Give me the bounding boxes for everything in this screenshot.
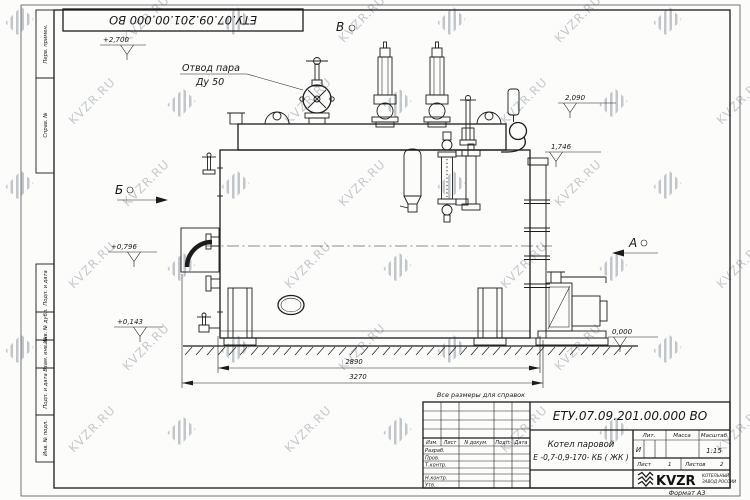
manhole	[278, 296, 304, 315]
plate-stub	[227, 113, 245, 124]
ground-line	[183, 346, 638, 355]
scale-value: 1:15	[706, 447, 722, 455]
col-podp: Подп.	[495, 440, 510, 446]
elevation-2700: +2,700	[103, 36, 129, 44]
company-tagline1: КОТЕЛЬНЫЙ	[702, 473, 730, 478]
elevation-mark-1746: 1,746	[545, 143, 601, 167]
support-foot-right	[474, 288, 506, 345]
elevation-0000: 0,000	[612, 328, 633, 336]
burner	[181, 228, 219, 272]
sheet-value: 1	[668, 462, 672, 468]
lifting-lug-right	[477, 112, 501, 124]
callout-steam-outlet: Отвод пара Ду 50	[180, 63, 303, 90]
company-name: KVZR	[656, 474, 696, 489]
view-top-label: В	[336, 20, 344, 34]
col-data: Дата	[514, 440, 528, 446]
row-razrab: Разраб.	[425, 448, 445, 454]
sheets-label: Листов	[684, 462, 706, 468]
company-tagline2: ЗАВОД РОССИИ	[702, 479, 737, 484]
kvzr-spring-icon	[638, 473, 653, 487]
elevation-mark-0143: +0,143	[114, 318, 163, 342]
dimension-2890: 2890	[218, 336, 540, 373]
sheets-value: 2	[720, 462, 724, 468]
elevation-mark-0000: 0,000	[608, 328, 658, 352]
water-level-gauge	[400, 132, 480, 222]
titleblock-designation: ЕТУ.07.09.201.00.000 ВО	[553, 409, 707, 423]
elevation-2090: 2,090	[565, 94, 586, 102]
elevation-0143: +0,143	[117, 318, 143, 326]
sheet-frame: Перв. примен. Справ. № Подп. и дата Инв.…	[21, 5, 740, 497]
view-marker-right: А	[612, 236, 658, 257]
view-marker-left: Б	[115, 183, 168, 204]
row-tkontr: Т.контр.	[425, 463, 447, 469]
boiler-side-view	[181, 42, 638, 355]
row-utv: Утв.	[425, 483, 436, 489]
row-prov: Пров.	[425, 456, 440, 462]
boiler-drawing-canvas: Перв. примен. Справ. № Подп. и дата Инв.…	[0, 0, 750, 500]
elevation-mark-2090: 2,090	[558, 94, 616, 118]
product-name-line2: Е -0,7-0,9-170- КБ ( ЖК )	[533, 453, 628, 462]
margin-label-inv-podl: Инв. № подл.	[43, 420, 49, 456]
elevation-0796: +0,796	[111, 243, 137, 251]
lit-value: И	[636, 446, 642, 454]
col-list: Лист	[443, 440, 458, 446]
view-right-label: А	[628, 236, 637, 250]
small-top-valve	[460, 96, 476, 146]
margin-label-podp-data-2: Подп. и дата	[43, 373, 49, 408]
callout-line2: Ду 50	[195, 77, 224, 88]
lit-header: Лит.	[642, 433, 656, 439]
top-left-valve	[202, 153, 216, 174]
row-nkontr: Н.контр.	[425, 476, 447, 482]
margin-label-perv-primen: Перв. примен.	[43, 25, 49, 64]
kvzr-logo: KVZR КОТЕЛЬНЫЙ ЗАВОД РОССИИ	[638, 473, 737, 490]
elevation-mark-2700: +2,700	[100, 36, 146, 60]
ground-hatch	[185, 347, 632, 355]
pressure-gauge	[501, 89, 527, 152]
feed-pump	[536, 272, 608, 345]
scale-header: Масштаб	[701, 433, 728, 439]
title-block: Изм. Лист N докум. Подп. Дата Разраб. Пр…	[423, 402, 737, 489]
support-foot-left	[224, 288, 256, 345]
lifting-lug-left	[265, 112, 289, 124]
elevation-mark-0796: +0,796	[108, 243, 157, 267]
view-left-label: Б	[115, 183, 123, 197]
mass-header: Масса	[673, 433, 691, 439]
callout-line1: Отвод пара	[182, 63, 240, 74]
dim-overall-value: 3270	[349, 373, 366, 381]
margin-label-podp-data-1: Подп. и дата	[43, 270, 49, 305]
format-note: Формат А3	[668, 489, 705, 497]
drawing-sheet: KVZR.RUKVZR.RUKVZR.RUKVZR.RUKVZR.RUKVZR.…	[0, 0, 750, 500]
margin-label-sprav-no: Справ. №	[43, 112, 49, 137]
drain-valve	[197, 313, 220, 332]
steam-outlet-valve	[300, 58, 334, 125]
corner-stamp-designation: ЕТУ.07.09.201.00.000 ВО	[109, 13, 257, 27]
annotations: Отвод пара Ду 50 В Б А	[100, 20, 658, 399]
sheet-label: Лист	[636, 462, 652, 468]
product-name-line1: Котел паровой	[548, 440, 615, 450]
corner-stamp: ЕТУ.07.09.201.00.000 ВО	[63, 9, 303, 31]
reference-note: Все размеры для справок	[437, 391, 525, 399]
dim-inner-value: 2890	[345, 358, 362, 366]
col-ndokum: N докум.	[464, 440, 487, 446]
elevation-1746: 1,746	[551, 143, 572, 151]
safety-valve-1	[372, 42, 398, 127]
safety-valve-2	[424, 42, 450, 127]
col-izm: Изм.	[426, 440, 438, 446]
margin-columns: Перв. примен. Справ. № Подп. и дата Инв.…	[36, 10, 54, 462]
boiler-shell	[220, 150, 530, 338]
margin-label-vzam-inv: Взам. инв. №	[43, 336, 49, 371]
view-marker-top: В	[336, 20, 355, 34]
